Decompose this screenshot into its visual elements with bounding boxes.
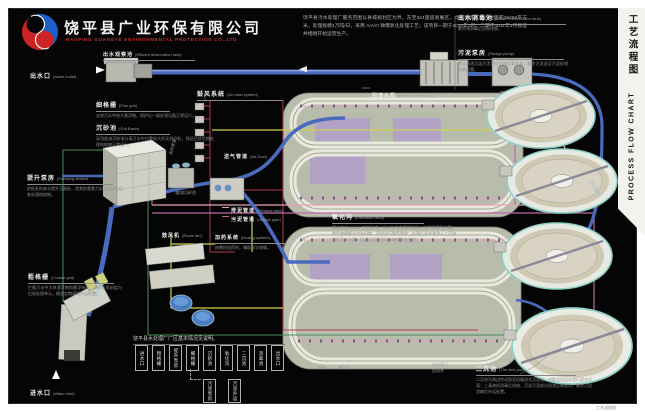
clarifier-side-box (504, 330, 516, 340)
mini-flow-caption: 饶平县水处理厂厂区基本情况见说明。 (133, 335, 285, 345)
mini-flow-step: 提升泵房 (169, 345, 182, 371)
mini-flow-step: 细格栅 (186, 345, 199, 371)
grit-funnel (225, 185, 232, 192)
fine-grid-machine (168, 168, 194, 188)
label-fine-grid: 细格栅(Fine grid) 去除污水中较大悬浮物，保护后一级处理设备正常运行。 (96, 100, 208, 119)
label-effluent-observation-tank: 出水观察池(Effluent observation tank) (103, 51, 195, 61)
effluent-observation-tank-structure (104, 58, 152, 82)
anoxic-zone (310, 254, 370, 280)
grit-funnel (215, 185, 222, 192)
label-sludge-pump-house: 污泥泵房(Sludge pump) 将二沉池沉淀污泥部分回流至氧化沟，剩余污泥送… (458, 48, 568, 73)
tank-outlet-box (134, 64, 152, 78)
outlet-flow-arrow (96, 67, 105, 74)
process-flow-chart-sheet: 饶平县广业环保有限公司 RAOPING GUANGYE ENVIRONMENTA… (0, 0, 645, 412)
inlet-flow-arrow (52, 370, 60, 379)
anoxic-zone (310, 156, 365, 184)
dosing-tank-top (196, 312, 210, 321)
building-front (117, 150, 166, 206)
border-caption: 工艺流程图 (596, 405, 616, 411)
anoxic-zone (390, 254, 442, 280)
mini-flow-branch-step: 污泥外运 (228, 379, 241, 403)
company-name-en: RAOPING GUANGYE ENVIRONMENTAL PROTECTION… (66, 37, 237, 42)
ditch-platform (283, 227, 521, 369)
label-grit-basin: 沉砂池(Grit Basin) 采用旋流沉砂池分离污水中比重较大的无机砂粒，保证… (96, 123, 214, 148)
mini-flow-step: 二沉池 (237, 345, 250, 371)
mini-flow-branch-connector (190, 369, 201, 380)
mini-flow-diagram: 饶平县水处理厂厂区基本情况见说明。 进水口 粗格栅 提升泵房 细格栅 沉砂池 氧… (133, 335, 313, 405)
label-oxidation-ditch: 氧化沟(Oxidation ditch) 氧化沟为 A/A/O 工艺形式，污水在… (332, 212, 456, 244)
label-rotating-brush: 转刷 (318, 365, 326, 371)
mini-flow-step: 出水口 (271, 345, 284, 371)
blower-house (145, 243, 204, 265)
label-dosing-system: 加药系统(Dosing system) 按需投加药剂，辅助化学除磷。 (215, 234, 293, 251)
sludge-pipe-swatch (222, 216, 229, 217)
anoxic-zone (393, 118, 441, 144)
clarifier-side-box (500, 166, 512, 176)
label-water-inlet: 进水口(Water inlet) (30, 382, 75, 400)
clarifier-side-box (494, 242, 506, 252)
label-coarse-grid: 粗格栅(Coarse grid) 拦截污水中大块漂浮物和悬浮杂质，保护水泵机组与… (28, 272, 122, 297)
blower-buildings (145, 243, 214, 326)
label-air-duct: 送气管道(Air Duct) (224, 145, 267, 163)
label-return-water-pump: 回流水泵(Return water pump) (372, 84, 435, 102)
company-name: 饶平县广业环保有限公司 (64, 17, 262, 38)
sheet-title-en: PROCESS FLOW CHART (628, 92, 635, 200)
tank-body (106, 62, 136, 82)
label-pumping-station: 提升泵房(Pumping station) 把低处的来水提升至高处，使其依靠重力… (27, 173, 123, 198)
blower-unit (195, 155, 204, 162)
label-secondary-clarifier: 二沉池(The sink pool) 二沉池为周边传动刮泥机辐流式沉淀池，对氧化… (476, 364, 592, 396)
mini-flow-step: 沉砂池 (203, 345, 216, 371)
label-aerator: 曝气机 (338, 365, 350, 371)
grit-cyclone (182, 163, 190, 168)
label-return-well: 回流井 (432, 368, 444, 374)
label-water-outlet: 出水口(water outlet) (30, 65, 76, 83)
label-vortex-grit: 旋流沉砂池 (176, 190, 196, 196)
sheet-title-cn: 工艺流程图 (625, 14, 639, 77)
sheet-title-strip: 工艺流程图 PROCESS FLOW CHART (618, 8, 645, 236)
label-sludge-pipe: 污泥管道(Sludge pipe) (222, 208, 281, 226)
taegeuk-logo-icon (20, 12, 60, 52)
blower-house (149, 265, 215, 290)
grit-cyclone (172, 164, 180, 169)
oxidation-ditch-group-2 (283, 227, 521, 369)
mini-flow-step: 消毒池 (254, 345, 267, 371)
anoxic-zone (315, 118, 370, 144)
mini-flow-branch-step: 污泥泵房 (203, 379, 216, 403)
mini-flow-step: 进水口 (135, 345, 148, 371)
clarifier-side-box (482, 100, 494, 110)
company-logo (20, 12, 60, 52)
mini-flow-step: 粗格栅 (152, 345, 165, 371)
label-air-blast-system: 鼓风系统(Air blast system) (197, 89, 283, 101)
inlet-opening (64, 350, 80, 361)
dosing-tank-top (174, 297, 188, 306)
label-roots-fan: 鼓风机(Roots fan) (162, 224, 202, 242)
mini-flow-step: 氧化沟 (220, 345, 233, 371)
label-effluent-disinfection: 出水消毒池(Effluent disinfection tank) 紫外线消毒后… (458, 13, 570, 32)
